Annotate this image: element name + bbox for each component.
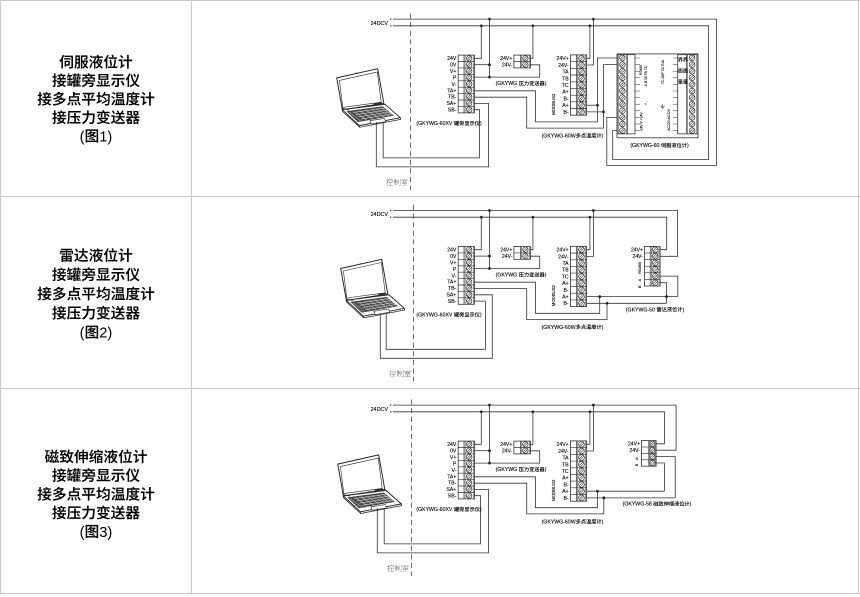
svg-text:24V+: 24V+ <box>500 56 512 62</box>
svg-text:AC220 AC220: AC220 AC220 <box>667 109 671 131</box>
svg-text:(GKYWG-58: (GKYWG-58 <box>623 502 652 508</box>
svg-text:A: A <box>635 457 639 460</box>
svg-text:A+: A+ <box>562 103 568 109</box>
svg-text:24V+: 24V+ <box>500 442 512 448</box>
svg-text:(GKYWG-60XV: (GKYWG-60XV <box>416 507 453 513</box>
svg-text:SA+: SA+ <box>447 293 457 299</box>
svg-text:24V: 24V <box>447 56 457 62</box>
svg-text:24V: 24V <box>447 442 457 448</box>
svg-text:TB-: TB- <box>448 481 457 487</box>
svg-text:(GKYWG: (GKYWG <box>496 467 518 473</box>
svg-text:TC: TC <box>562 274 569 280</box>
svg-text:24DCV: 24DCV <box>371 212 389 218</box>
svg-text:(GKYWG-50: (GKYWG-50 <box>626 307 655 313</box>
svg-text:24V-: 24V- <box>558 449 569 455</box>
svg-text:P: P <box>453 267 457 273</box>
svg-text:P: P <box>453 461 457 467</box>
svg-text:0V: 0V <box>450 449 457 455</box>
svg-text:TB: TB <box>562 462 569 468</box>
svg-text:): ) <box>545 467 547 473</box>
svg-text:A+: A+ <box>562 90 568 96</box>
svg-text:TC 2BP TA 7UA: TC 2BP TA 7UA <box>661 59 665 84</box>
svg-text:): ) <box>545 273 547 279</box>
svg-text:): ) <box>602 133 604 139</box>
svg-text:): ) <box>602 519 604 525</box>
svg-text:V-: V- <box>451 468 456 474</box>
svg-text:A+: A+ <box>562 281 568 287</box>
svg-text:MODBUS2: MODBUS2 <box>551 479 556 501</box>
svg-text:B-: B- <box>564 288 569 294</box>
svg-text:V-: V- <box>451 82 456 88</box>
svg-text:RS485: RS485 <box>638 262 642 274</box>
svg-text:B-: B- <box>564 96 569 102</box>
svg-text:A+: A+ <box>562 295 568 301</box>
svg-text:24V+: 24V+ <box>557 56 569 62</box>
svg-text:(GKYWG: (GKYWG <box>496 81 518 87</box>
svg-text:24V+: 24V+ <box>557 248 569 254</box>
svg-text:V-: V- <box>451 273 456 279</box>
svg-text:TB-: TB- <box>448 95 457 101</box>
svg-text:SB-: SB- <box>448 108 457 114</box>
svg-text:B-: B- <box>564 482 569 488</box>
svg-text:): ) <box>480 313 482 319</box>
svg-text:V+: V+ <box>450 260 456 266</box>
svg-text:24DCV: 24DCV <box>371 21 389 27</box>
svg-text:(GKYWG: (GKYWG <box>496 273 518 279</box>
svg-text:(GKYWG-60W: (GKYWG-60W <box>542 325 576 331</box>
svg-text:(GKYWG-60XV: (GKYWG-60XV <box>416 121 453 127</box>
svg-text:TA+: TA+ <box>447 88 456 94</box>
svg-text:B: B <box>638 285 642 288</box>
svg-text:TC: TC <box>562 469 569 475</box>
svg-text:MODBUS2: MODBUS2 <box>551 93 556 115</box>
svg-text:24V-: 24V- <box>502 254 513 260</box>
svg-text:SA+: SA+ <box>447 101 457 107</box>
svg-text:3): 3) <box>99 525 112 541</box>
svg-text:): ) <box>682 307 684 313</box>
svg-text:TB: TB <box>562 76 569 82</box>
svg-text:B-: B- <box>564 301 569 307</box>
svg-text:B-: B- <box>564 110 569 116</box>
svg-text:): ) <box>480 121 482 127</box>
svg-text:(: ( <box>80 326 85 342</box>
svg-text:24DCV: 24DCV <box>371 407 389 413</box>
svg-text:SB-: SB- <box>448 494 457 500</box>
svg-text:TB-: TB- <box>448 286 457 292</box>
svg-text:): ) <box>690 502 692 508</box>
svg-text:0V: 0V <box>450 254 457 260</box>
svg-text:TA: TA <box>562 456 569 462</box>
svg-text:1): 1) <box>99 129 112 145</box>
svg-text:TA: TA <box>562 70 569 76</box>
svg-text:24V+: 24V+ <box>628 442 640 448</box>
svg-text:V+: V+ <box>450 455 456 461</box>
svg-text:TB: TB <box>562 268 569 274</box>
svg-text:(GKYWG-60W: (GKYWG-60W <box>542 519 576 525</box>
svg-text:TC: TC <box>562 83 569 89</box>
svg-text:24V+: 24V+ <box>557 442 569 448</box>
svg-text:0V: 0V <box>450 63 457 69</box>
svg-text:SB-: SB- <box>448 299 457 305</box>
svg-text:24V: 24V <box>447 248 457 254</box>
svg-text:24V-: 24V- <box>630 448 641 454</box>
svg-text:A B TA TB TC: A B TA TB TC <box>644 65 648 86</box>
svg-text:24V-: 24V- <box>502 63 513 69</box>
svg-text:A+: A+ <box>562 489 568 495</box>
svg-text:(GKYWG-60W: (GKYWG-60W <box>542 133 576 139</box>
svg-text:): ) <box>545 81 547 87</box>
svg-text:24V+: 24V+ <box>631 248 643 254</box>
svg-text:24V-: 24V- <box>633 254 644 260</box>
svg-text:RS485: RS485 <box>639 65 643 75</box>
svg-text:24V-: 24V- <box>558 63 569 69</box>
svg-text:): ) <box>602 325 604 331</box>
svg-text:B-: B- <box>564 496 569 502</box>
svg-text:24V-: 24V- <box>558 254 569 260</box>
svg-text:A: A <box>638 278 642 281</box>
svg-text:TA+: TA+ <box>447 474 456 480</box>
svg-text:P: P <box>453 75 457 81</box>
svg-text:MODBUS2: MODBUS2 <box>551 284 556 306</box>
svg-text:(GKYWG-60XV: (GKYWG-60XV <box>416 313 453 319</box>
svg-text:B: B <box>635 463 639 466</box>
svg-text:A+: A+ <box>562 476 568 482</box>
svg-text:24V+: 24V+ <box>500 248 512 254</box>
svg-text:TA+: TA+ <box>447 280 456 286</box>
svg-text:SA+: SA+ <box>447 487 457 493</box>
svg-text:(: ( <box>80 525 85 541</box>
svg-text:(GKYWG-60: (GKYWG-60 <box>630 143 659 149</box>
svg-text:-24V P +24V: -24V P +24V <box>640 112 644 132</box>
svg-text:): ) <box>480 507 482 513</box>
svg-text:+ -: + - <box>644 101 648 105</box>
svg-text:): ) <box>687 143 689 149</box>
svg-text:2): 2) <box>99 326 112 342</box>
svg-text:TA: TA <box>562 261 569 267</box>
svg-text:(: ( <box>80 129 85 145</box>
svg-text:V+: V+ <box>450 69 456 75</box>
svg-text:24V-: 24V- <box>502 449 513 455</box>
